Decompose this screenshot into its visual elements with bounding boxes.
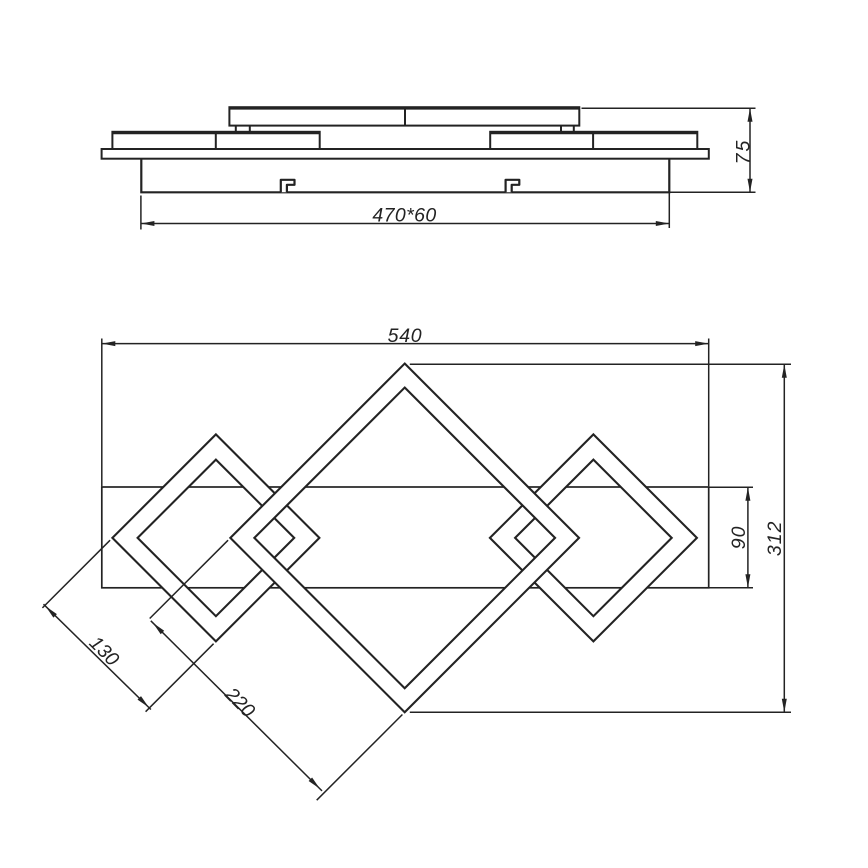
- svg-text:75: 75: [732, 139, 754, 165]
- svg-text:540: 540: [388, 325, 423, 347]
- svg-text:312: 312: [764, 521, 786, 557]
- svg-text:470*60: 470*60: [372, 205, 436, 227]
- svg-text:90: 90: [728, 526, 750, 550]
